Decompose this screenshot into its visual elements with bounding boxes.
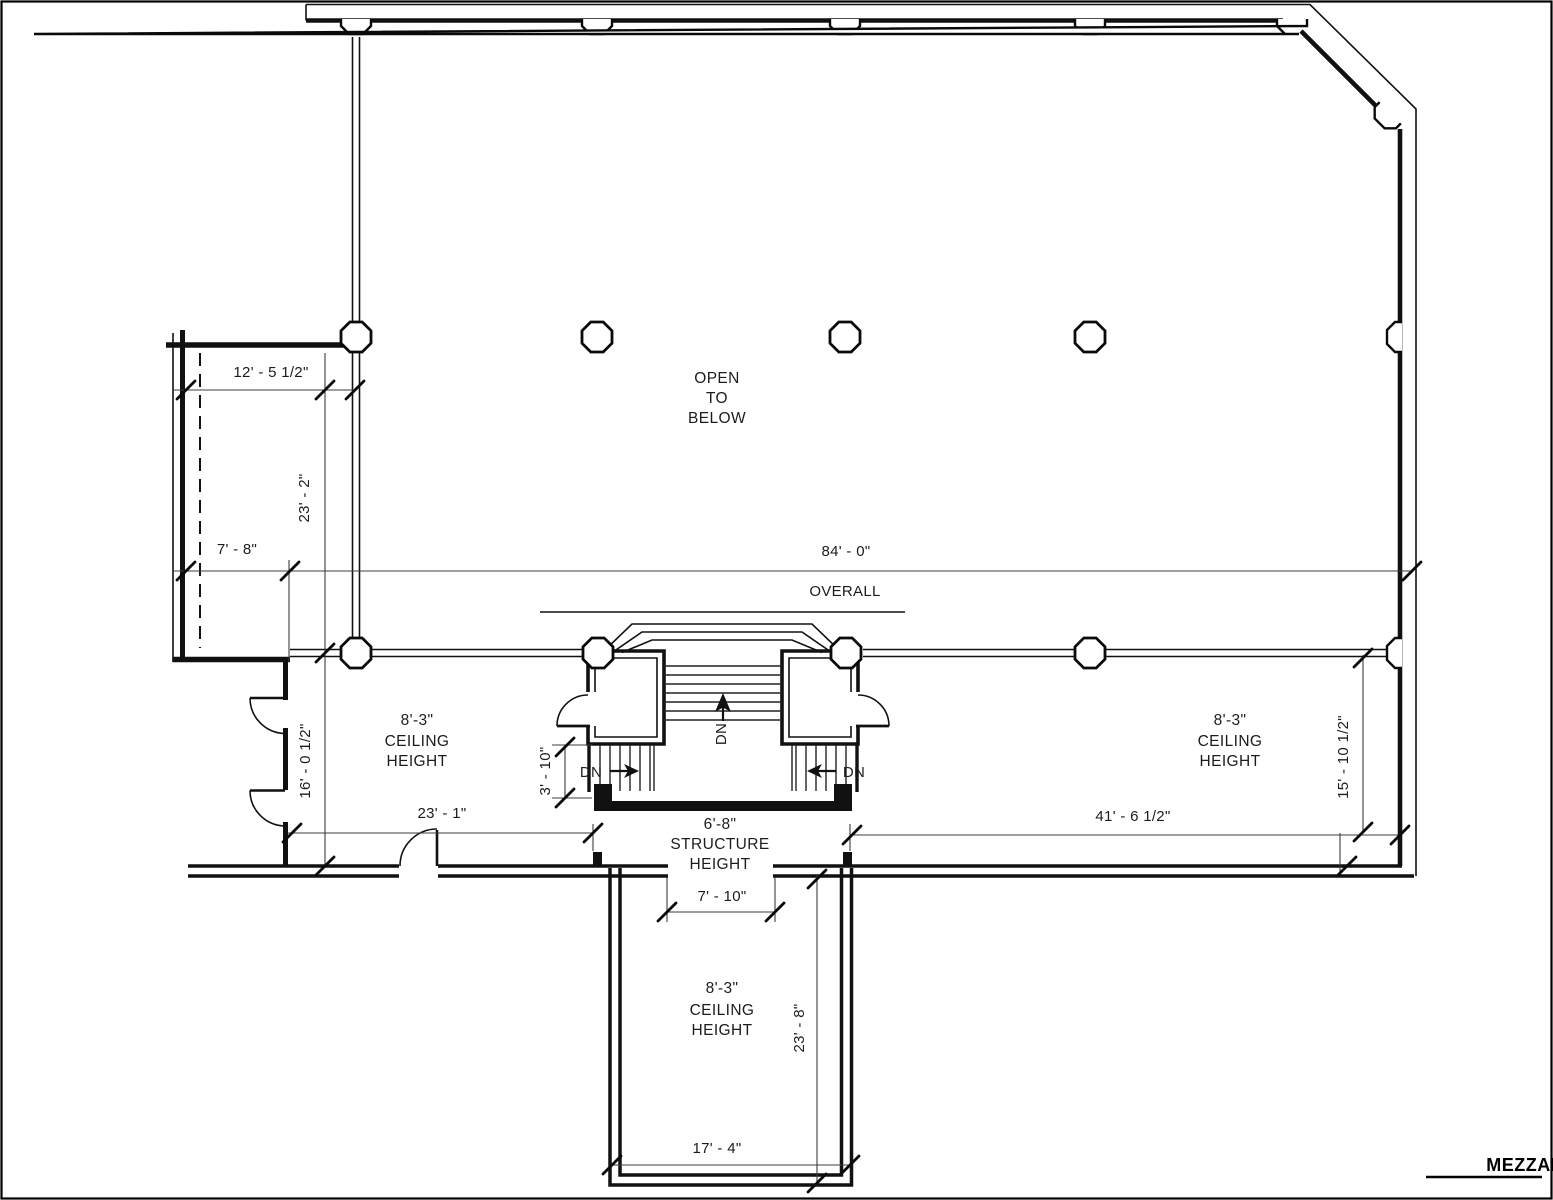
wall-stub <box>843 852 852 866</box>
sheet-title: MEZZANINE <box>1486 1155 1553 1175</box>
wall-pilaster <box>1387 322 1402 352</box>
room-label-right: 8'-3" <box>1214 712 1247 729</box>
room-label-bottom: CEILING <box>690 1002 755 1019</box>
dim-right-room-width: 41' - 6 1/2" <box>1095 808 1170 825</box>
column-octagon <box>1075 638 1105 668</box>
dimensions <box>174 353 1421 1192</box>
door-swing-arc <box>250 791 286 827</box>
dim-bottom-room-depth: 23' - 8" <box>791 1004 808 1053</box>
room-label-stair-core: HEIGHT <box>690 856 751 873</box>
stair-landing-edge <box>604 624 840 651</box>
stair-dn-label: DN <box>843 764 865 781</box>
column-octagon <box>830 322 860 352</box>
room-label-left: 8'-3" <box>401 712 434 729</box>
column-octagon <box>341 638 371 668</box>
room-label-right: CEILING <box>1198 733 1263 750</box>
dim-left-room-height: 16' - 0 1/2" <box>297 723 314 798</box>
dim-stair-opening: 7' - 10" <box>698 888 747 905</box>
room-label-bottom: 8'-3" <box>706 980 739 997</box>
annotations: OPEN TO BELOW 84' - 0" OVERALL 12' - 5 1… <box>217 364 1553 1177</box>
left-wing-walls <box>166 330 352 866</box>
column-octagon <box>582 322 612 352</box>
stair-tower-wall <box>595 658 657 737</box>
wall-pilaster <box>1369 102 1401 134</box>
doors <box>250 695 889 866</box>
wall-line <box>1301 31 1377 107</box>
dim-left-room-width: 23' - 1" <box>418 805 467 822</box>
dim-overall-label: OVERALL <box>809 583 880 600</box>
open-to-below-label: TO <box>706 390 728 407</box>
wall-stub <box>593 852 602 866</box>
door-swing-arc <box>858 695 889 726</box>
column-octagon <box>1075 322 1105 352</box>
dim-wing-height: 23' - 2" <box>296 474 313 523</box>
room-label-left: HEIGHT <box>387 753 448 770</box>
dim-bottom-room-width: 17' - 4" <box>693 1140 742 1157</box>
column-octagon <box>583 638 613 668</box>
column-octagon <box>831 638 861 668</box>
room-label-right: HEIGHT <box>1200 753 1261 770</box>
dim-right-room-depth: 15' - 10 1/2" <box>1335 715 1352 799</box>
floor-plan-canvas: OPEN TO BELOW 84' - 0" OVERALL 12' - 5 1… <box>0 0 1553 1200</box>
room-label-stair-core: 6'-8" <box>704 816 737 833</box>
dimension-ticks <box>177 381 1421 1192</box>
column-octagon <box>341 322 371 352</box>
room-label-bottom: HEIGHT <box>692 1022 753 1039</box>
room-label-stair-core: STRUCTURE <box>670 836 769 853</box>
dim-wing-width: 12' - 5 1/2" <box>233 364 308 381</box>
stair-dn-label: DN <box>713 723 730 745</box>
door-swing-arc <box>400 829 437 866</box>
dim-overall-value: 84' - 0" <box>822 543 871 560</box>
dim-side-stair: 3' - 10" <box>537 747 554 796</box>
door-swing-arc <box>250 698 286 734</box>
dimension-line <box>288 824 593 851</box>
floor-plan-sheet: OPEN TO BELOW 84' - 0" OVERALL 12' - 5 1… <box>0 0 1553 1200</box>
open-to-below-label: OPEN <box>694 370 740 387</box>
stair-tower-wall <box>789 658 851 737</box>
open-to-below-label: BELOW <box>688 410 746 427</box>
stair-landing <box>594 784 852 811</box>
drawing-border <box>2 2 1552 1199</box>
dim-wing-offset: 7' - 8" <box>217 541 257 558</box>
room-label-left: CEILING <box>385 733 450 750</box>
door-swing-arc <box>557 695 588 726</box>
stair-dn-label: DN <box>580 764 602 781</box>
wall-pilaster <box>1387 638 1402 668</box>
